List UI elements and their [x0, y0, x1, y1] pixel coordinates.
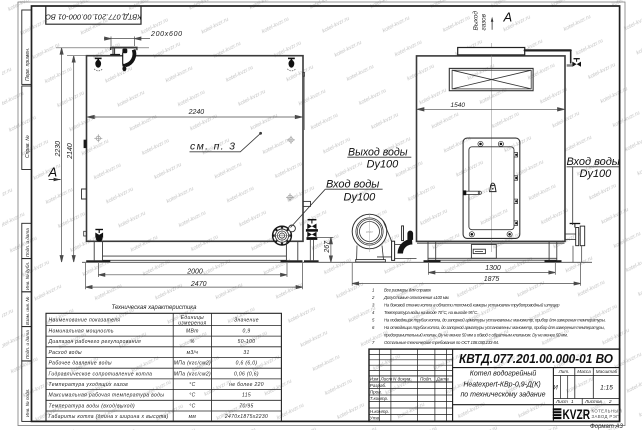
- svg-text:Подп. и дата: Подп. и дата: [25, 330, 30, 359]
- svg-text:0,06 (0,6): 0,06 (0,6): [234, 371, 259, 377]
- svg-text:КВТД.077.201.00.000-01 ВО: КВТД.077.201.00.000-01 ВО: [45, 13, 142, 22]
- svg-text:1: 1: [571, 399, 574, 404]
- svg-text:2240: 2240: [188, 109, 205, 116]
- svg-text:Инв. № подл.: Инв. № подл.: [25, 388, 30, 417]
- svg-text:2000: 2000: [186, 269, 203, 276]
- svg-text:см. п. 3: см. п. 3: [190, 141, 235, 153]
- svg-text:Лист: Лист: [555, 399, 568, 404]
- svg-text:Подп.: Подп.: [420, 377, 432, 382]
- svg-text:°С: °С: [189, 382, 195, 388]
- svg-text:На боковой стенке котла в обла: На боковой стенке котла в области топочн…: [384, 303, 560, 308]
- svg-text:115: 115: [242, 393, 251, 399]
- svg-text:N докум.: N докум.: [393, 377, 412, 382]
- svg-text:Габариты котла (длина х ширина: Габариты котла (длина х ширина х высота): [49, 414, 169, 420]
- svg-text:по техническому задание: по техническому задание: [460, 391, 545, 399]
- svg-text:%: %: [190, 339, 195, 345]
- svg-text:ЗАВОД РЭП: ЗАВОД РЭП: [592, 414, 620, 419]
- svg-text:Dy100: Dy100: [344, 191, 377, 203]
- svg-text:МВт: МВт: [186, 329, 199, 335]
- svg-text:0,6 (6,0): 0,6 (6,0): [236, 361, 258, 367]
- svg-text:Котел водогрейный: Котел водогрейный: [470, 370, 537, 378]
- svg-text:Разраб.: Разраб.: [370, 383, 387, 388]
- svg-text:мм: мм: [189, 414, 197, 420]
- svg-text:Утв.: Утв.: [370, 416, 380, 421]
- svg-text:Максимальная рабочая температу: Максимальная рабочая температура воды: [49, 393, 165, 399]
- svg-text:измерения: измерения: [178, 321, 206, 327]
- svg-text:Перв. примен.: Перв. примен.: [25, 48, 31, 81]
- svg-text:1875: 1875: [484, 276, 500, 283]
- svg-text:Масштаб: Масштаб: [596, 369, 618, 374]
- svg-text:KVZR: KVZR: [563, 407, 591, 422]
- svg-text:Формат А3: Формат А3: [590, 424, 623, 430]
- svg-text:предохранительный клапан. Dу н: предохранительный клапан. Dу не менее 50…: [384, 333, 568, 338]
- svg-text:Справ. №: Справ. №: [25, 135, 31, 158]
- svg-text:Вход воды: Вход воды: [326, 178, 379, 190]
- svg-text:МПа (кгс/см2): МПа (кгс/см2): [174, 371, 211, 377]
- svg-text:31: 31: [243, 350, 249, 356]
- svg-text:°С: °С: [189, 393, 195, 399]
- svg-text:Остальные технические требован: Остальные технические требования по ОСТ …: [384, 340, 499, 345]
- svg-text:°С: °С: [189, 403, 195, 409]
- svg-text:Расход воды: Расход воды: [49, 350, 82, 356]
- svg-text:1540: 1540: [451, 102, 466, 109]
- svg-text:Температура воды (вход/выход): Температура воды (вход/выход): [49, 403, 136, 409]
- svg-text:Техническая характеристика: Техническая характеристика: [112, 305, 198, 311]
- svg-text:м3/ч: м3/ч: [187, 350, 199, 356]
- svg-text:Дата: Дата: [436, 377, 450, 382]
- svg-text:КВТД.077.201.00.000-01 ВО: КВТД.077.201.00.000-01 ВО: [459, 352, 613, 366]
- svg-text:Т.контр.: Т.контр.: [370, 396, 389, 401]
- svg-text:Лист: Лист: [380, 377, 393, 382]
- svg-text:70/95: 70/95: [239, 403, 253, 409]
- svg-text:Допустимые отклонения ±100 мм: Допустимые отклонения ±100 мм.: [383, 295, 449, 300]
- svg-text:На подводящих трубах котла,: На подводящих трубах котла, до запорной …: [384, 318, 606, 323]
- svg-text:267: 267: [324, 240, 331, 254]
- svg-text:1:15: 1:15: [600, 385, 613, 392]
- svg-text:2470х1875х2230: 2470х1875х2230: [224, 414, 268, 420]
- svg-text:Масса: Масса: [577, 369, 591, 374]
- svg-text:КОТЕЛЬНЫЙ: КОТЕЛЬНЫЙ: [592, 409, 623, 414]
- svg-text:Гидравлическое сопротивление к: Гидравлическое сопротивление котла: [49, 371, 153, 377]
- svg-text:Выход воды: Выход воды: [348, 146, 408, 158]
- svg-text:2140: 2140: [67, 143, 74, 160]
- svg-text:2: 2: [608, 399, 612, 404]
- svg-text:Выход: Выход: [472, 11, 480, 31]
- svg-text:50-100: 50-100: [238, 339, 256, 345]
- svg-text:Изм: Изм: [370, 377, 379, 382]
- svg-text:Вход воды: Вход воды: [567, 156, 620, 168]
- svg-text:МПа (кгс/см2): МПа (кгс/см2): [174, 361, 211, 367]
- svg-text:Все размеры для справок: Все размеры для справок: [384, 288, 432, 293]
- svg-text:Инв. № дубл.: Инв. № дубл.: [25, 262, 30, 290]
- svg-text:газов: газов: [481, 13, 488, 30]
- svg-text:Dy100: Dy100: [367, 158, 400, 170]
- svg-text:Номинальная мощность: Номинальная мощность: [49, 329, 114, 335]
- svg-text:На отводящих трубах котла, до: На отводящих трубах котла, до запорной а…: [384, 325, 605, 330]
- svg-text:Диапазон рабочего регулировани: Диапазон рабочего регулирования: [48, 339, 141, 345]
- svg-text:А: А: [503, 10, 513, 25]
- svg-text:Подп. и дата: Подп. и дата: [25, 228, 30, 257]
- svg-text:Dy100: Dy100: [580, 168, 613, 180]
- svg-text:Heatexpert-КВр-0,9-Д(К): Heatexpert-КВр-0,9-Д(К): [463, 382, 540, 389]
- svg-text:Н.контр.: Н.контр.: [370, 409, 389, 414]
- svg-text:Температура уходящих газов: Температура уходящих газов: [49, 382, 129, 388]
- svg-text:Листов: Листов: [584, 399, 602, 404]
- svg-text:Температура воды на входе 70°: Температура воды на входе 70°С, на выход…: [384, 310, 478, 315]
- svg-text:не более 220: не более 220: [229, 382, 264, 388]
- svg-text:А: А: [48, 165, 58, 180]
- svg-text:2470: 2470: [190, 281, 207, 288]
- svg-text:И: И: [553, 385, 558, 392]
- svg-text:Лит.: Лит.: [558, 369, 570, 374]
- svg-text:Значение: Значение: [234, 318, 259, 324]
- svg-text:2230: 2230: [55, 141, 62, 158]
- svg-text:1300: 1300: [485, 265, 501, 272]
- svg-text:Наименование показателя: Наименование показателя: [49, 318, 121, 324]
- svg-text:Взам. инв. №: Взам. инв. №: [25, 297, 30, 325]
- svg-text:0,9: 0,9: [242, 329, 250, 335]
- svg-text:Пров.: Пров.: [370, 390, 382, 395]
- svg-text:Рабочее давление воды: Рабочее давление воды: [49, 361, 112, 367]
- svg-text:200х600: 200х600: [150, 31, 183, 38]
